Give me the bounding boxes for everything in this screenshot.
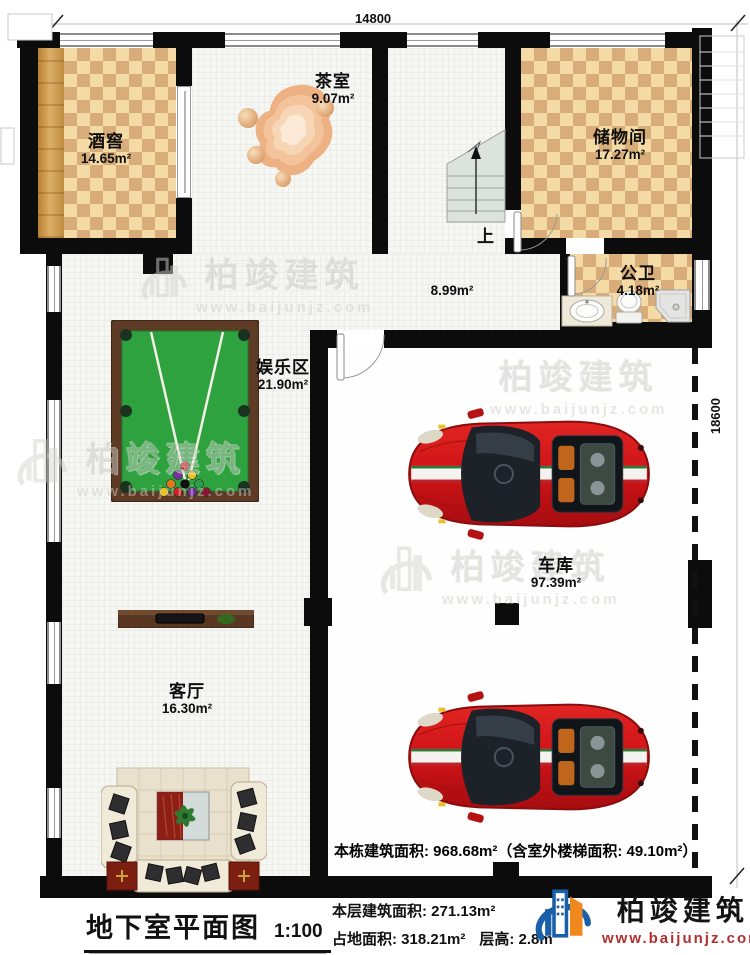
company-website: www.baijunjz.com xyxy=(602,930,750,947)
building-area-note: 本栋建筑面积: 968.68m²（含室外楼梯面积: 49.10m²） xyxy=(334,840,697,861)
column xyxy=(304,598,332,626)
wall-storage-bottom-a xyxy=(505,238,566,254)
basement-floor-plan: 柏竣建筑 www.baijunjz.com 柏竣建筑 www.baijunjz.… xyxy=(0,0,750,955)
window xyxy=(47,266,61,312)
footprint-line: 占地面积: 318.21m²层高: 2.8m xyxy=(332,926,553,954)
plan-title: 地下室平面图 xyxy=(86,906,260,945)
wall-tea-stair xyxy=(372,32,388,254)
column xyxy=(495,603,519,625)
wall-garage-top-b xyxy=(384,330,712,348)
window xyxy=(47,400,61,542)
room-label-entertainment: 娱乐区 21.90m² xyxy=(256,358,310,392)
floor-area-line: 本层建筑面积: 271.13m² xyxy=(332,898,553,926)
car xyxy=(383,686,665,828)
plan-scale: 1:100 xyxy=(274,921,323,945)
wall-stub xyxy=(143,254,173,274)
wall-notch xyxy=(493,862,519,878)
company-logo: 柏竣建筑 www.baijunjz.com xyxy=(530,886,750,950)
area-info: 本层建筑面积: 271.13m² 占地面积: 318.21m²层高: 2.8m xyxy=(332,898,553,954)
plan-title-block: 地下室平面图 1:100 xyxy=(84,906,331,953)
room-label-living-room: 客厅 16.30m² xyxy=(162,682,212,716)
sofa-set xyxy=(101,766,267,894)
wall-wine-right-a xyxy=(176,32,192,86)
car xyxy=(383,403,665,545)
wall-wine-right-b xyxy=(176,198,192,254)
wall-left-upper xyxy=(20,32,38,254)
window xyxy=(694,260,710,310)
room-label-bathroom: 公卫 4.18m² xyxy=(617,264,660,298)
wine-cellar-door xyxy=(177,86,191,198)
window xyxy=(47,788,61,838)
wall-storage-left xyxy=(505,32,521,210)
room-label-wine-cellar: 酒窖 14.65m² xyxy=(81,132,131,166)
window xyxy=(47,622,61,684)
room-label-storage: 储物间 17.27m² xyxy=(593,128,647,162)
hallway-floor xyxy=(62,254,560,330)
wall-wine-bottom xyxy=(20,238,192,254)
window xyxy=(407,33,478,47)
room-label-garage: 车库 97.39m² xyxy=(531,556,581,590)
window xyxy=(550,33,665,47)
window xyxy=(225,33,340,47)
tv-console xyxy=(118,610,254,628)
wine-rack xyxy=(38,48,64,238)
window xyxy=(60,33,153,47)
garage-opening-dashed-line xyxy=(692,348,698,876)
company-name: 柏竣建筑 xyxy=(617,889,749,929)
room-label-tea-room: 茶室 9.07m² xyxy=(312,72,355,106)
company-logo-icon xyxy=(530,886,594,950)
dimension-top: 14800 xyxy=(355,11,391,26)
pool-table xyxy=(111,320,259,502)
dimension-right: 18600 xyxy=(708,398,723,434)
stairs-up-label: 上 xyxy=(477,222,494,247)
room-label-hallway: 8.99m² xyxy=(431,283,474,298)
